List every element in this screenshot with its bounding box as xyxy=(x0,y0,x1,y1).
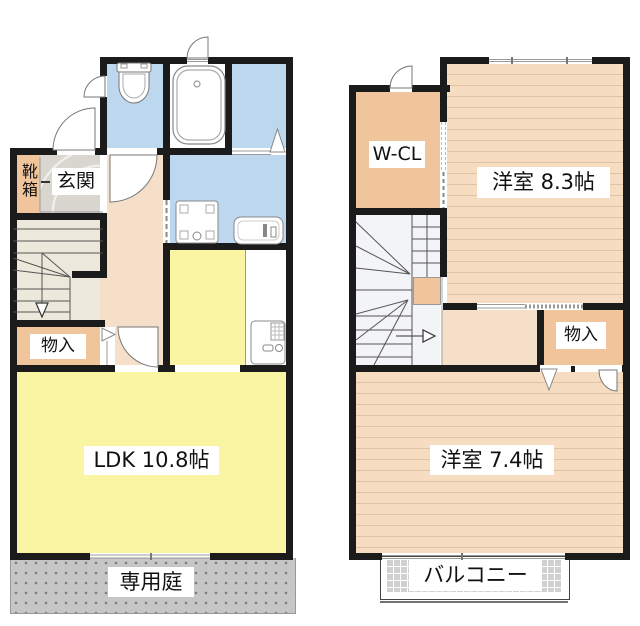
stair-landing xyxy=(413,277,441,305)
wall-segment xyxy=(10,148,57,155)
wall-segment xyxy=(349,85,356,560)
room-washroom xyxy=(170,155,286,243)
wall-segment xyxy=(100,57,187,64)
staircase-1f xyxy=(17,220,100,320)
closet-opening-lines xyxy=(442,122,446,208)
wall-segment xyxy=(10,553,90,560)
wall-segment xyxy=(537,310,544,365)
wall-segment xyxy=(72,271,107,278)
wall-segment xyxy=(286,57,293,560)
bedroom-7-4-label: 洋室 7.4帖 xyxy=(430,445,554,475)
bath-window-arc xyxy=(187,37,208,58)
wall-segment xyxy=(163,243,293,250)
wall-segment xyxy=(440,57,447,122)
storage-2f-label: 物入 xyxy=(556,322,606,349)
wall-segment xyxy=(240,365,293,372)
wall-segment xyxy=(208,57,293,64)
wall-segment xyxy=(225,64,232,150)
storage-1f-label: 物入 xyxy=(30,334,86,359)
shoe-box-label: 靴箱 xyxy=(18,163,40,211)
wall-segment xyxy=(100,213,107,278)
wall-segment xyxy=(163,155,170,200)
room-toilet xyxy=(107,64,163,148)
wall-segment xyxy=(349,365,540,372)
ldk-label: LDK 10.8帖 xyxy=(84,446,219,475)
wall-segment xyxy=(10,365,115,372)
wall-segment xyxy=(100,64,107,76)
wall-segment xyxy=(349,208,447,215)
wall-segment xyxy=(157,148,232,155)
wall-segment xyxy=(10,213,107,220)
wall-segment xyxy=(349,553,382,560)
closet-window-arc xyxy=(390,66,412,88)
wall-segment xyxy=(440,215,447,277)
wall-segment xyxy=(565,553,630,560)
wall-segment xyxy=(158,365,175,372)
hallway xyxy=(107,155,163,372)
floorplan-canvas: 靴箱 玄関 物入 LDK 10.8帖 専用庭 xyxy=(0,0,640,626)
bedroom-7-4-doorway xyxy=(540,365,622,372)
ldk-doorway xyxy=(115,365,158,372)
bedroom-8-3-label: 洋室 8.3帖 xyxy=(477,167,610,198)
walk-in-closet-label: W-CL xyxy=(369,141,425,168)
wall-segment xyxy=(210,553,293,560)
entrance-door-arc xyxy=(53,108,95,150)
wall-segment xyxy=(100,97,107,150)
entrance-label: 玄関 xyxy=(52,168,100,195)
room-bath xyxy=(170,64,225,148)
ldk-upper xyxy=(170,250,245,365)
storage-1f-door xyxy=(100,327,115,365)
balcony-label: バルコニー xyxy=(409,560,542,591)
wall-segment xyxy=(583,303,630,310)
kitchen-counter-area xyxy=(245,250,286,365)
toilet-window-arc xyxy=(84,76,105,97)
wall-segment xyxy=(163,250,170,372)
wall-segment xyxy=(443,57,489,64)
wall-segment xyxy=(10,320,105,327)
garden-label: 専用庭 xyxy=(108,567,194,597)
corridor-2f xyxy=(441,310,537,365)
wall-segment xyxy=(622,365,630,372)
wall-segment xyxy=(443,303,477,310)
wall-segment xyxy=(163,64,170,150)
room-washroom-upper xyxy=(232,64,286,148)
wall-segment xyxy=(10,148,17,560)
